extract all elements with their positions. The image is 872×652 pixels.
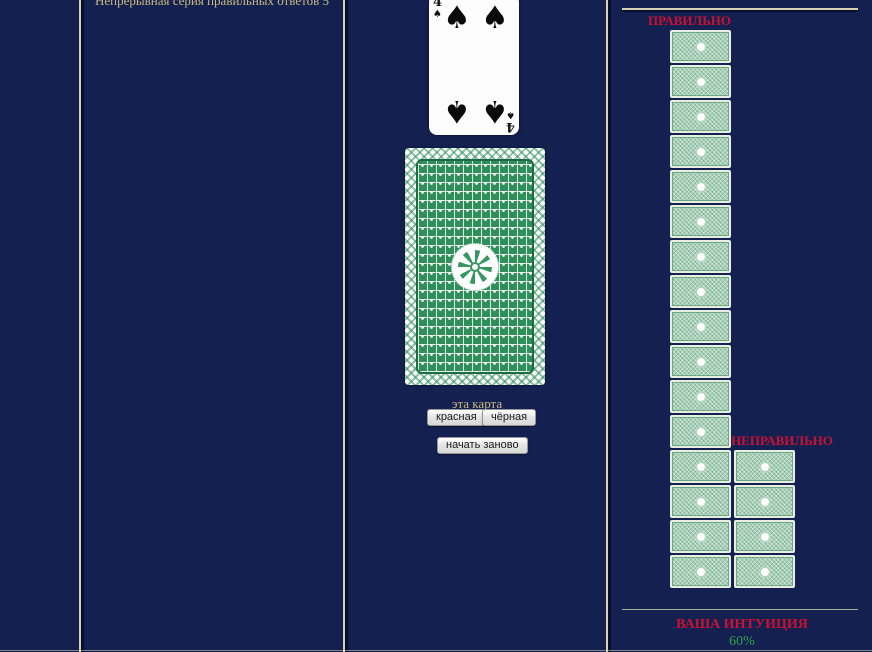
mini-card-back [670, 65, 731, 98]
streak-text: Непрерывная серия правильных ответов 5 [95, 0, 329, 9]
mini-card-back [670, 555, 731, 588]
table-bottom-border [0, 650, 872, 651]
card-back-pattern [416, 159, 534, 374]
mini-card-back [734, 450, 795, 483]
card-back-medallion-icon [759, 566, 771, 578]
mini-card-back [734, 485, 795, 518]
card-back-medallion-icon [695, 321, 707, 333]
red-choice-button[interactable]: красная [427, 409, 486, 426]
mini-card-back [670, 240, 731, 273]
card-back-medallion-icon [695, 496, 707, 508]
mini-card-back [670, 100, 731, 133]
card-back-medallion-icon [695, 391, 707, 403]
card-back-medallion-icon [695, 286, 707, 298]
correct-heading: ПРАВИЛЬНО [622, 13, 757, 29]
restart-button[interactable]: начать заново [437, 437, 528, 454]
column-divider-left [79, 0, 84, 652]
black-choice-button[interactable]: чёрная [482, 409, 536, 426]
bottom-divider [622, 609, 858, 610]
face-down-card [405, 148, 545, 385]
card-back-medallion-icon [695, 356, 707, 368]
mini-card-back [670, 380, 731, 413]
incorrect-stack [734, 450, 795, 590]
mini-card-back [670, 345, 731, 378]
card-back-medallion-icon [695, 41, 707, 53]
card-back-medallion-icon [759, 461, 771, 473]
intuition-heading: ВАША ИНТУИЦИЯ [612, 617, 872, 633]
card-back-medallion-icon [695, 566, 707, 578]
card-back-medallion-icon [695, 181, 707, 193]
mini-card-back [734, 520, 795, 553]
mini-card-back [670, 520, 731, 553]
mini-card-back [670, 205, 731, 238]
spade-icon: ♠ [481, 95, 509, 126]
card-back-medallion-icon [759, 531, 771, 543]
card-back-medallion-icon [695, 531, 707, 543]
revealed-card: 4 ♠ ♠ ♠ ♠ ♠ 4 ♠ [429, 0, 519, 135]
mini-card-back [670, 170, 731, 203]
mini-card-back [670, 135, 731, 168]
card-back-medallion-icon [451, 243, 499, 291]
intuition-value: 60% [612, 634, 872, 650]
column-divider-middle [343, 0, 348, 652]
top-divider [622, 8, 858, 12]
spade-icon: ♠ [443, 3, 471, 34]
mini-card-back [734, 555, 795, 588]
mini-card-back [670, 275, 731, 308]
spade-icon: ♠ [433, 10, 442, 20]
game-page: Непрерывная серия правильных ответов 5 4… [0, 0, 872, 652]
card-back-medallion-icon [695, 216, 707, 228]
spade-icon: ♠ [443, 95, 471, 126]
card-corner-bottom-right: 4 ♠ [506, 109, 515, 133]
mini-card-back [670, 450, 731, 483]
incorrect-heading: НЕПРАВИЛЬНО [722, 433, 842, 449]
column-divider-right [606, 0, 611, 652]
mini-card-back [670, 485, 731, 518]
card-back-medallion-icon [695, 461, 707, 473]
card-back-medallion-icon [695, 426, 707, 438]
mini-card-back [670, 30, 731, 63]
card-rank: 4 [506, 120, 515, 133]
card-back-medallion-icon [695, 76, 707, 88]
card-back-medallion-icon [695, 146, 707, 158]
correct-stack [670, 30, 731, 590]
card-corner-top-left: 4 ♠ [433, 0, 442, 20]
spade-icon: ♠ [481, 3, 509, 34]
card-back-medallion-icon [695, 111, 707, 123]
card-back-medallion-icon [759, 496, 771, 508]
card-back-medallion-icon [695, 251, 707, 263]
mini-card-back [670, 310, 731, 343]
rosette-icon [458, 250, 492, 284]
card-rank: 4 [433, 0, 442, 9]
spade-icon: ♠ [506, 109, 515, 119]
